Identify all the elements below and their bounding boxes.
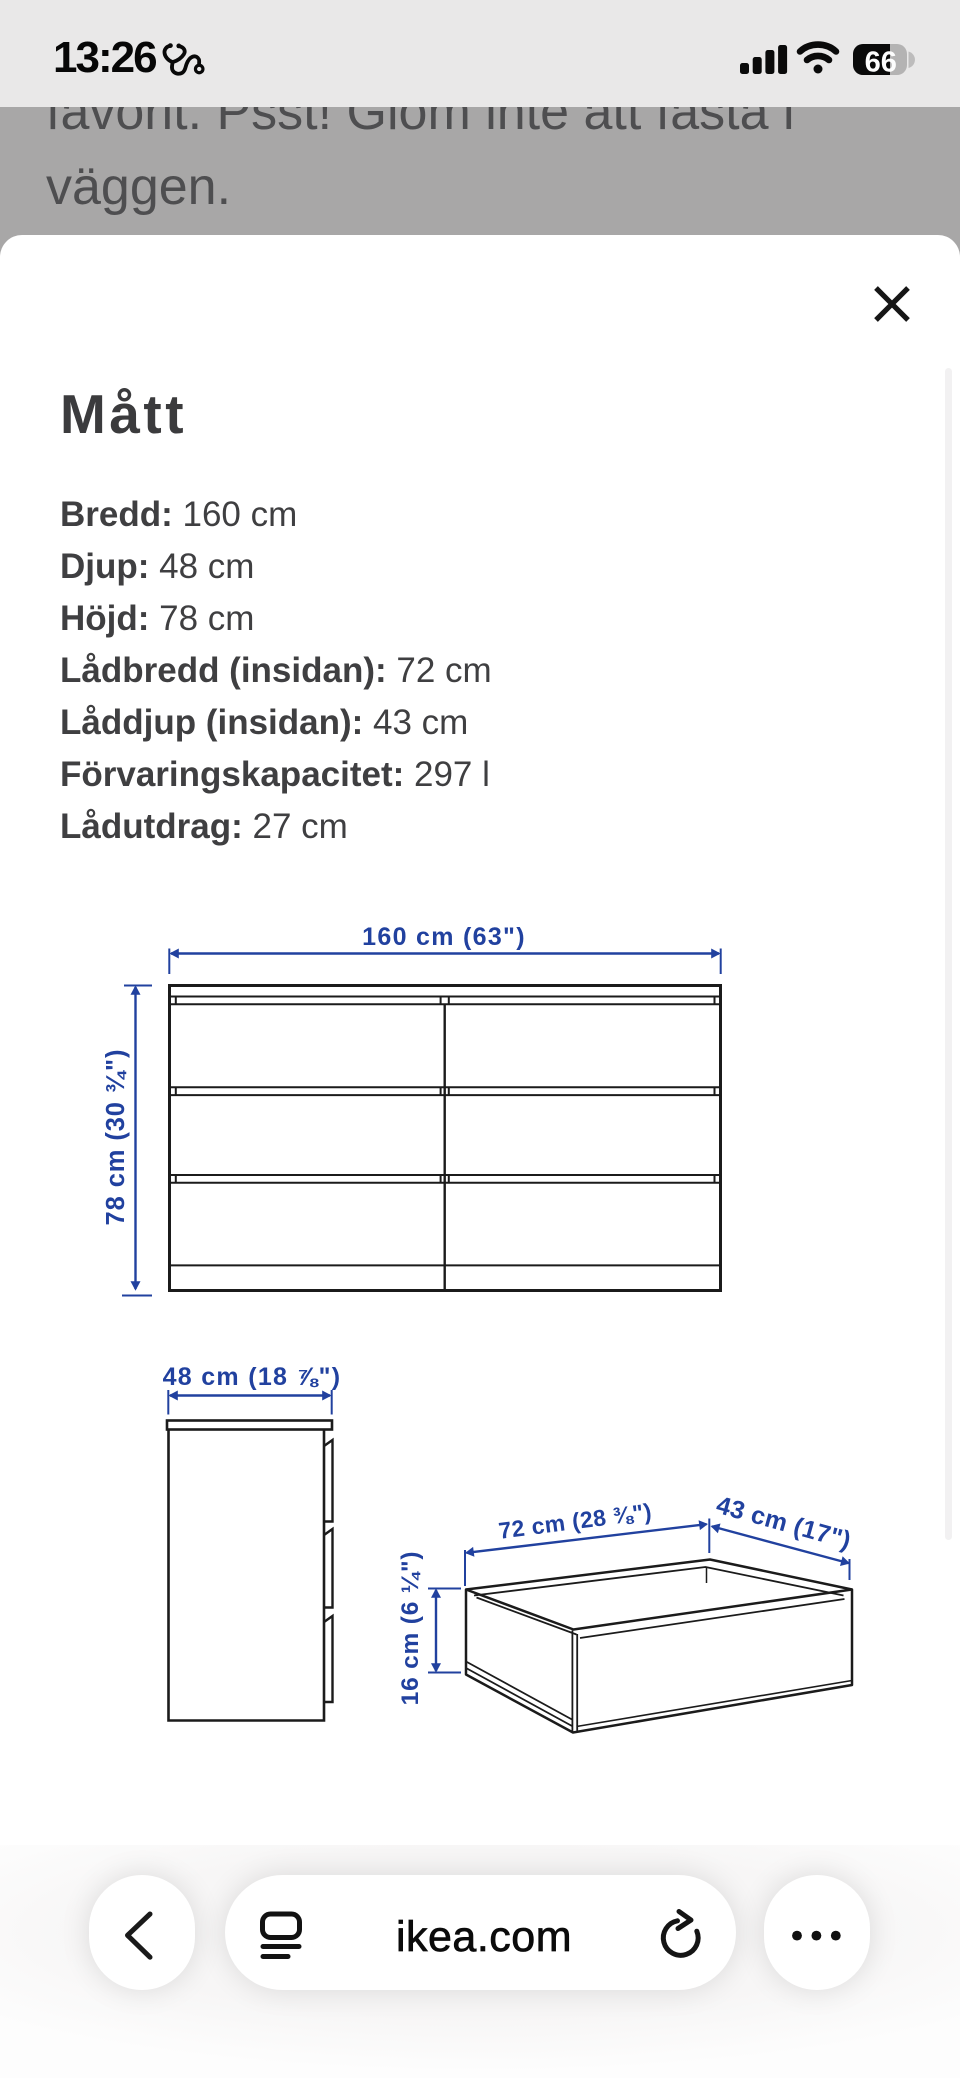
svg-text:48 cm (18 ⅞"): 48 cm (18 ⅞") <box>163 1363 342 1391</box>
svg-text:66: 66 <box>865 47 897 79</box>
svg-text:160 cm (63"): 160 cm (63") <box>362 923 526 951</box>
svg-text:78 cm (30 ¾"): 78 cm (30 ¾") <box>102 1049 130 1226</box>
svg-text:72 cm (28 ⅜"): 72 cm (28 ⅜") <box>497 1498 653 1544</box>
svg-text:16 cm (6 ¼"): 16 cm (6 ¼") <box>397 1551 424 1706</box>
